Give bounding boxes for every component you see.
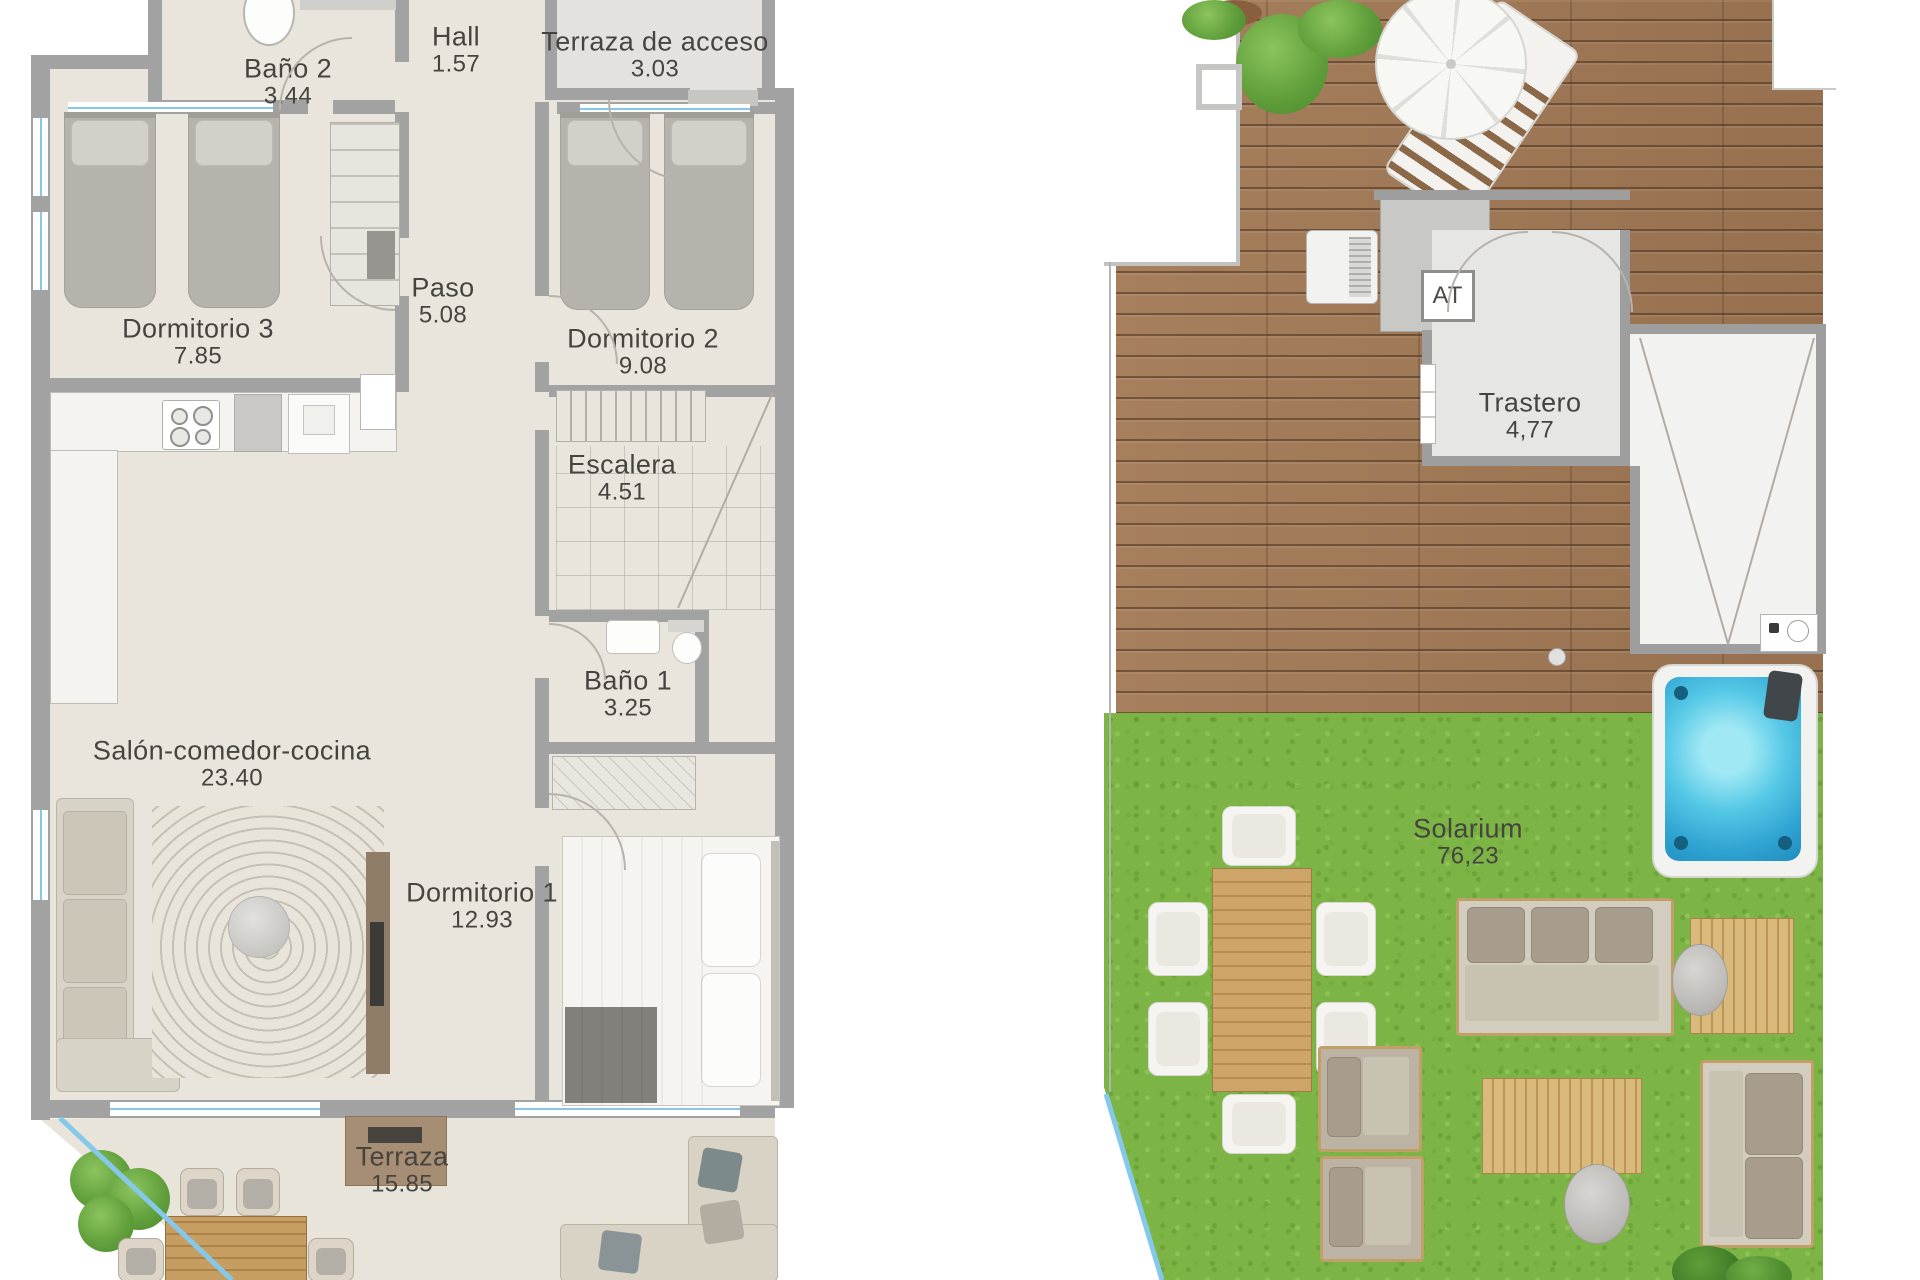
wall-segment xyxy=(535,742,549,808)
wall-segment xyxy=(148,0,162,100)
stair-treads xyxy=(556,390,706,442)
stairwell xyxy=(1630,334,1816,648)
tv-sideboard-icon xyxy=(366,852,390,1074)
wall-segment xyxy=(535,362,549,392)
chair-icon xyxy=(1148,1002,1208,1076)
room-label-dormitorio3: Dormitorio 37.85 xyxy=(122,313,274,370)
wardrobe-item xyxy=(367,231,395,279)
wall-segment xyxy=(1620,230,1630,466)
chair-icon xyxy=(1222,1094,1296,1154)
terrace-table-icon xyxy=(165,1216,307,1280)
wall-segment xyxy=(1422,442,1432,466)
ac-unit-icon xyxy=(1306,230,1378,304)
room-label-bano1: Baño 13.25 xyxy=(584,665,672,722)
room-label-escalera: Escalera4.51 xyxy=(568,449,676,506)
wall-segment xyxy=(535,102,549,296)
room-label-bano2: Baño 23.44 xyxy=(244,53,332,110)
floorplan-image: Baño 23.44 Hall1.57 Terraza de acceso3.0… xyxy=(0,0,1920,1280)
chair-icon xyxy=(1316,902,1376,976)
pillow-icon xyxy=(697,1147,743,1193)
exterior-cutout xyxy=(50,0,150,55)
window xyxy=(33,810,48,900)
at-label: AT xyxy=(1433,282,1464,310)
room-label-terraza: Terraza15.85 xyxy=(356,1141,449,1198)
washbasin-icon xyxy=(606,620,660,654)
armchair-icon xyxy=(1320,1156,1424,1262)
jacuzzi-icon xyxy=(1652,664,1818,878)
wall-segment xyxy=(535,430,549,616)
wall-segment xyxy=(395,296,409,392)
wall-segment xyxy=(1630,466,1640,654)
sink-icon xyxy=(288,394,350,454)
single-bed-icon xyxy=(64,112,156,308)
wall-segment xyxy=(545,88,690,100)
window xyxy=(68,102,273,112)
window xyxy=(1420,364,1436,444)
wall-segment xyxy=(1422,330,1432,364)
slat-table-icon xyxy=(1482,1078,1642,1174)
room-label-paso: Paso5.08 xyxy=(411,272,474,329)
jacuzzi-pillow xyxy=(1763,670,1803,722)
toilet-icon xyxy=(672,632,702,664)
room-label-hall: Hall1.57 xyxy=(432,21,480,78)
chair-icon xyxy=(1222,806,1296,866)
garden-table-icon xyxy=(1212,868,1312,1092)
coffee-table-icon xyxy=(228,896,290,958)
at-label-box: AT xyxy=(1421,270,1475,322)
room-label-solarium: Solarium76,23 xyxy=(1413,813,1523,870)
window xyxy=(110,1102,320,1116)
room-label-dormitorio1: Dormitorio 112.93 xyxy=(406,877,558,934)
chair-icon xyxy=(180,1168,224,1216)
lamp-icon xyxy=(1548,648,1566,666)
double-bed-icon xyxy=(562,836,780,1106)
vanity-counter xyxy=(300,0,396,10)
window xyxy=(33,212,48,290)
kitchen-counter xyxy=(50,450,118,704)
kitchen-column xyxy=(360,374,396,430)
exterior-cutout xyxy=(1772,0,1836,90)
wall-segment xyxy=(333,100,395,114)
chair-icon xyxy=(118,1238,164,1280)
room-label-trastero: Trastero4,77 xyxy=(1479,387,1582,444)
room-label-terraza-acceso: Terraza de acceso3.03 xyxy=(541,26,768,83)
hob-icon xyxy=(162,400,220,450)
faucet-icon xyxy=(1769,623,1779,633)
chair-icon xyxy=(236,1168,280,1216)
wardrobe-icon xyxy=(552,756,696,810)
chair-icon xyxy=(308,1238,354,1280)
pillow-icon xyxy=(699,1199,745,1245)
wall-segment xyxy=(31,55,153,69)
balustrade-line xyxy=(1109,262,1111,1092)
pillow-icon xyxy=(598,1230,643,1275)
wall-segment xyxy=(1630,324,1826,334)
wall-segment xyxy=(1374,190,1630,200)
armchair-icon xyxy=(1318,1046,1422,1152)
wall-segment xyxy=(535,678,549,748)
wall-segment xyxy=(50,378,395,392)
bowl-icon xyxy=(1787,620,1809,642)
appliance-icon xyxy=(234,394,282,452)
wall-segment xyxy=(1432,456,1630,466)
window xyxy=(580,104,750,112)
wall-segment xyxy=(549,742,775,754)
wall-segment xyxy=(395,0,409,62)
wall-segment xyxy=(1816,324,1826,654)
window xyxy=(33,118,48,196)
sink-niche xyxy=(1760,614,1818,652)
room-label-salon: Salón-comedor-cocina23.40 xyxy=(93,735,371,792)
exterior-cutout xyxy=(1104,0,1240,266)
skylight-icon xyxy=(1196,64,1242,110)
room-label-dormitorio2: Dormitorio 29.08 xyxy=(567,323,719,380)
stone-table-icon xyxy=(1672,944,1728,1016)
stone-table-icon xyxy=(1564,1164,1630,1244)
garden-sofa-icon xyxy=(1700,1060,1814,1248)
tv-icon xyxy=(370,922,384,1006)
single-bed-icon xyxy=(188,112,280,308)
toilet-tank xyxy=(668,620,704,632)
wardrobe-icon xyxy=(330,122,400,306)
chair-icon xyxy=(1148,902,1208,976)
garden-sofa-icon xyxy=(1456,898,1674,1036)
single-bed-icon xyxy=(560,112,650,310)
corner-sofa-icon xyxy=(560,1224,778,1280)
single-bed-icon xyxy=(664,112,754,310)
